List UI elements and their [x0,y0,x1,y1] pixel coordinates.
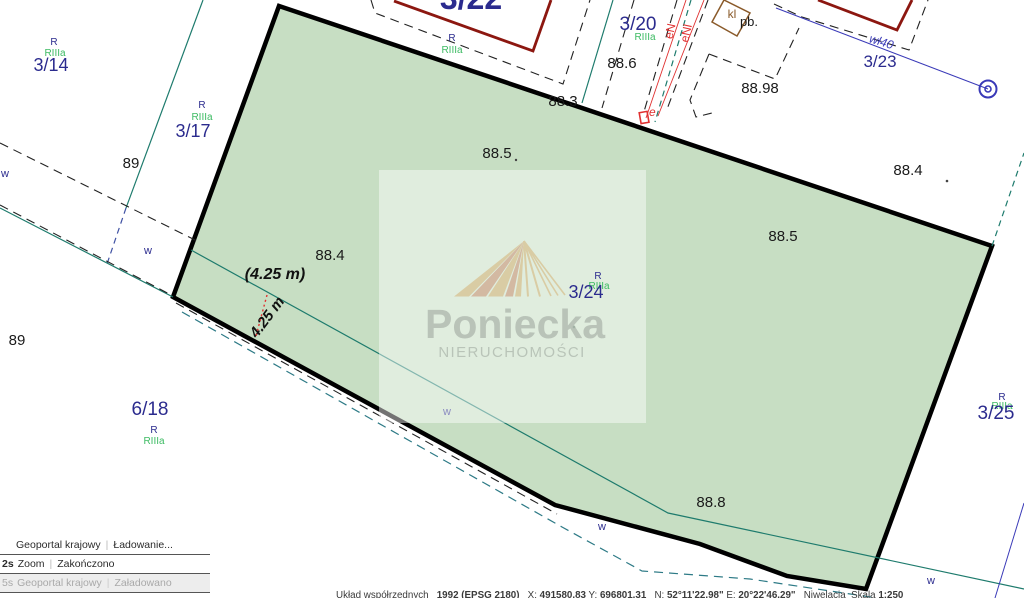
svg-text:88.3: 88.3 [548,93,577,110]
svg-text:eN: eN [662,22,679,40]
svg-text:88.4: 88.4 [893,162,922,179]
svg-text:88.4: 88.4 [315,247,344,264]
svg-text:kl: kl [728,7,737,21]
svg-text:RIIIa: RIIIa [634,32,656,43]
svg-text:RIIIa: RIIIa [441,45,463,56]
svg-text:Poniecka: Poniecka [425,301,606,347]
svg-text:w: w [597,521,606,533]
svg-text:e: e [649,105,656,119]
svg-text:89: 89 [123,155,140,172]
svg-text:w: w [0,168,9,180]
svg-text:eNl: eNl [677,23,694,44]
svg-text:3/23: 3/23 [863,52,896,71]
svg-text:88.5: 88.5 [768,228,797,245]
svg-text:(4.25 m): (4.25 m) [245,266,305,283]
svg-text:3/24: 3/24 [568,282,603,302]
svg-text:RIIIa: RIIIa [143,436,165,447]
svg-text:3/14: 3/14 [33,55,68,75]
svg-text:w: w [926,575,935,587]
svg-text:w: w [143,245,152,257]
svg-text:3/17: 3/17 [175,121,210,141]
svg-text:88.6: 88.6 [607,55,636,72]
svg-text:3/22: 3/22 [440,0,502,16]
svg-text:wł40: wł40 [868,31,896,52]
svg-text:89: 89 [9,332,26,349]
svg-text:R: R [150,425,157,436]
svg-text:6/18: 6/18 [132,399,169,420]
svg-text:NIERUCHOMOŚCI: NIERUCHOMOŚCI [438,343,585,361]
svg-text:3/25: 3/25 [978,403,1015,424]
svg-text:88.98: 88.98 [741,80,779,97]
svg-text:R: R [50,37,57,48]
svg-text:88.8: 88.8 [696,494,725,511]
svg-text:R: R [448,33,455,44]
svg-text:R: R [198,100,205,111]
svg-text:pb.: pb. [740,14,758,29]
svg-text:88.5: 88.5 [482,145,511,162]
